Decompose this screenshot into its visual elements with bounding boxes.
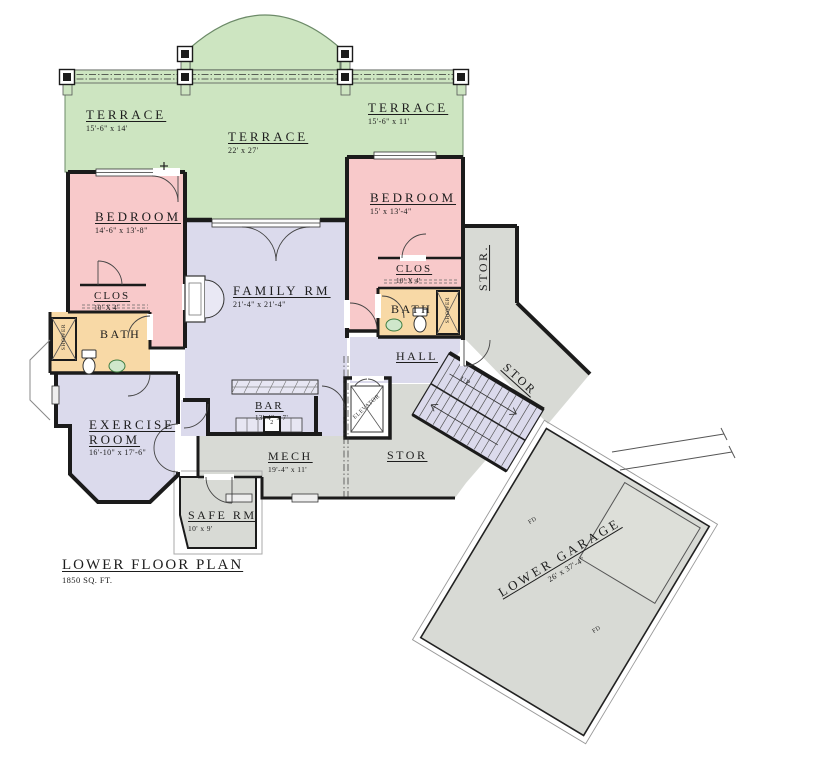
bedroom-left-label: BEDROOM 14'-6" x 13'-8" bbox=[95, 208, 181, 236]
shower-left-label: SHOWER bbox=[61, 317, 67, 357]
stor-mid-label: STOR bbox=[387, 446, 427, 464]
plan-title: LOWER FLOOR PLAN 1850 SQ. FT. bbox=[62, 556, 243, 585]
dimension-lines bbox=[612, 428, 735, 470]
bath-right-label: BATH bbox=[391, 303, 432, 316]
safe-room-label: SAFE RM 10' x 9' bbox=[188, 506, 257, 533]
bath-left-label: BATH bbox=[100, 328, 141, 341]
terrace-right-label: TERRACE 15'-6" x 11' bbox=[368, 99, 448, 127]
family-room-label: FAMILY RM 21'-4" x 21'-4" bbox=[233, 282, 331, 310]
window-bay-outline bbox=[30, 340, 50, 420]
terrace-beam bbox=[62, 70, 467, 83]
floor-plan: TERRACE 15'-6" x 14' TERRACE 22' x 27' T… bbox=[0, 0, 840, 772]
exercise-room-label: EXERCISE ROOM 16'-10" x 17'-6" bbox=[89, 418, 199, 458]
mech-label: MECH 19'-4" x 11' bbox=[268, 447, 313, 474]
terrace-dome bbox=[190, 15, 340, 70]
terrace-left-label: TERRACE 15'-6" x 14' bbox=[86, 106, 166, 134]
bar-label: BAR 13'-4" x 7' bbox=[255, 396, 288, 423]
bedroom-right-label: BEDROOM 15' x 13'-4" bbox=[370, 189, 456, 217]
bar-range-label: 2 bbox=[257, 420, 287, 427]
shower-right-label: SHOWER bbox=[445, 290, 451, 330]
stor-upper-label: STOR. bbox=[474, 237, 492, 299]
terrace-center-label: TERRACE 22' x 27' bbox=[228, 128, 308, 156]
hall-label: HALL bbox=[396, 347, 438, 365]
bar-counter bbox=[232, 380, 318, 394]
closet-right-label: CLOS 10' X 4' bbox=[396, 259, 432, 286]
closet-left-label: CLOS 10' X 4' bbox=[94, 286, 130, 313]
